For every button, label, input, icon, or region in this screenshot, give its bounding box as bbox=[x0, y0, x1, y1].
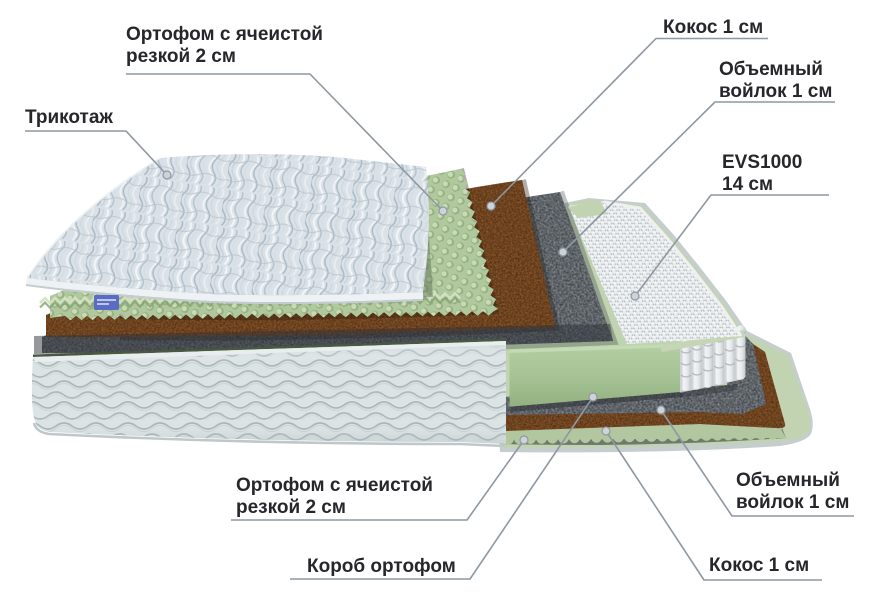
svg-text:Объемный: Объемный bbox=[736, 470, 840, 491]
svg-text:резкой 2 см: резкой 2 см bbox=[126, 46, 236, 67]
svg-text:Кокос 1 см: Кокос 1 см bbox=[663, 17, 763, 38]
svg-text:резкой 2 см: резкой 2 см bbox=[236, 497, 346, 518]
svg-text:Ортофом с ячеистой: Ортофом с ячеистой bbox=[236, 475, 433, 496]
svg-text:14 см: 14 см bbox=[722, 174, 773, 195]
svg-text:Трикотаж: Трикотаж bbox=[25, 107, 113, 128]
svg-text:Объемный: Объемный bbox=[719, 59, 823, 80]
svg-text:Короб ортофом: Короб ортофом bbox=[307, 556, 456, 577]
svg-text:войлок 1 см: войлок 1 см bbox=[719, 81, 832, 102]
svg-text:Ортофом с ячеистой: Ортофом с ячеистой bbox=[126, 24, 323, 45]
svg-text:войлок 1 см: войлок 1 см bbox=[736, 492, 849, 513]
svg-text:Кокос 1 см: Кокос 1 см bbox=[709, 555, 809, 576]
svg-text:EVS1000: EVS1000 bbox=[722, 152, 802, 173]
